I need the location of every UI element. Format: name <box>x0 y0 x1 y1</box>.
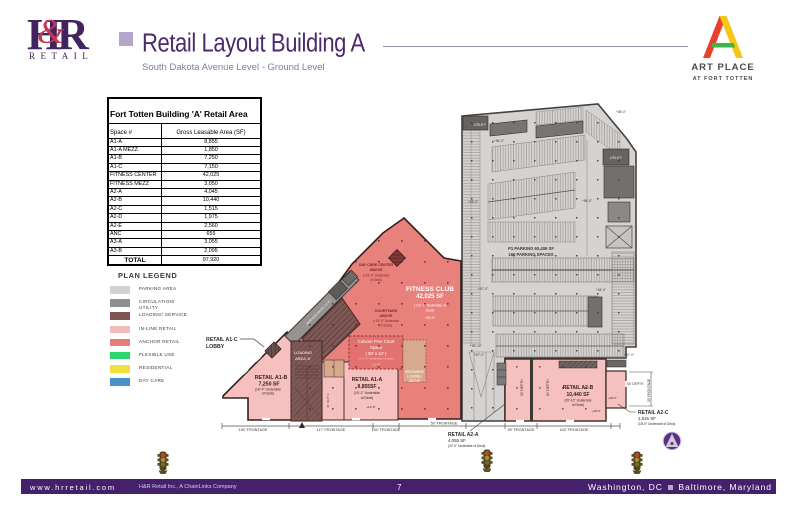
svg-text:50' DEPTH: 50' DEPTH <box>627 382 644 386</box>
svg-text:(18'-0" Underside of Deck): (18'-0" Underside of Deck) <box>638 422 675 426</box>
svg-text:117' FRONTAGE: 117' FRONTAGE <box>317 428 346 432</box>
svg-text:+48'-6": +48'-6" <box>608 396 617 400</box>
svg-text:150' FRONTAGE: 150' FRONTAGE <box>372 428 401 432</box>
svg-text:AT FORT TOTTEN: AT FORT TOTTEN <box>693 76 754 82</box>
svg-text:RETAIL A1-B: RETAIL A1-B <box>255 375 288 381</box>
svg-text:150' FRONTAGE: 150' FRONTAGE <box>239 428 268 432</box>
svg-text:50' FRONTAGE: 50' FRONTAGE <box>431 422 458 426</box>
svg-text:(22'-0" Underside of Deck): (22'-0" Underside of Deck) <box>448 444 485 448</box>
svg-text:192' FRONTAGE: 192' FRONTAGE <box>560 428 589 432</box>
svg-text:of Deck): of Deck) <box>262 392 275 396</box>
svg-text:RETAIL A1-C: RETAIL A1-C <box>206 337 238 343</box>
svg-text:+58'-0": +58'-0" <box>616 110 626 114</box>
svg-text:4,055 SF: 4,055 SF <box>448 438 466 443</box>
svg-text:90' FRONTAGE: 90' FRONTAGE <box>508 428 535 432</box>
svg-text:1,515 SF: 1,515 SF <box>638 416 656 421</box>
svg-text:50' FRONTAGE: 50' FRONTAGE <box>647 378 651 402</box>
svg-text:LOBBY: LOBBY <box>206 344 225 350</box>
svg-text:ART PLACE: ART PLACE <box>691 62 754 73</box>
